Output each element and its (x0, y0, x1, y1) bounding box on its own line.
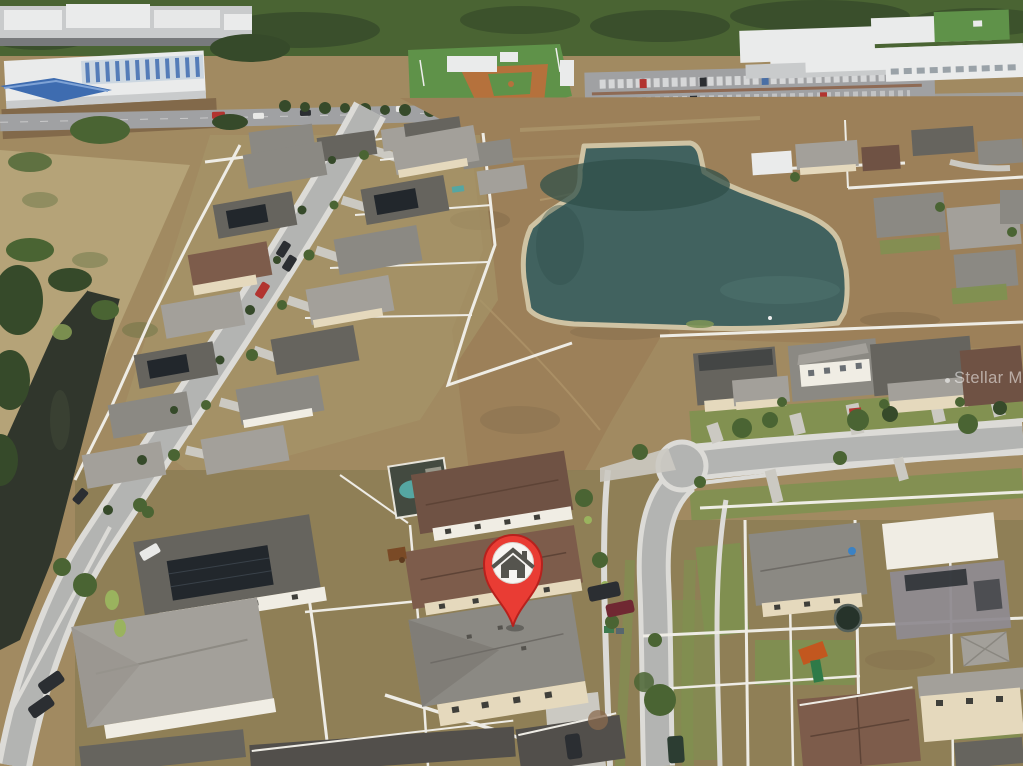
aerial-photo: Stellar MLS (0, 0, 1023, 766)
brown-roof-home (797, 687, 921, 766)
trampoline (835, 605, 861, 631)
lens-speck (945, 378, 950, 383)
watermark: Stellar MLS (954, 369, 1023, 391)
two-story-home (788, 338, 881, 401)
small-pool (848, 547, 856, 555)
sports-field (934, 9, 1010, 42)
shed (961, 632, 1010, 667)
aerial-scene (0, 0, 1023, 766)
bare-tree (588, 710, 608, 730)
